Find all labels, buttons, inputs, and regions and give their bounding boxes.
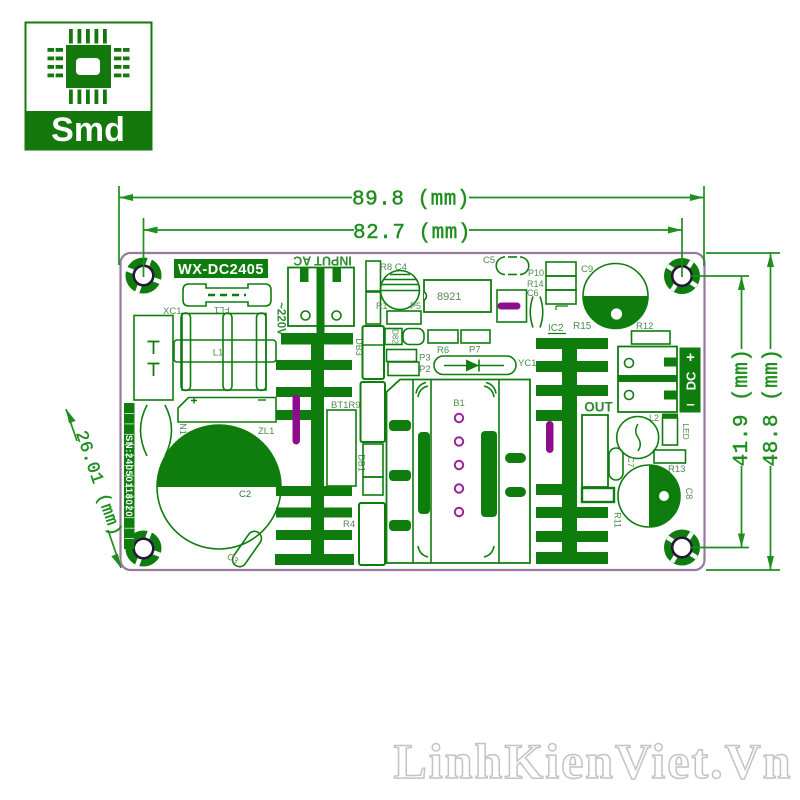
svg-text:R6: R6 (437, 345, 449, 356)
svg-text:~220V: ~220V (275, 302, 287, 336)
svg-text:C5: C5 (483, 255, 495, 266)
svg-text:OUT: OUT (584, 400, 613, 415)
svg-text:DB1: DB1 (357, 454, 367, 472)
svg-text:IC2: IC2 (548, 323, 564, 334)
svg-text:48.8 (mm): 48.8 (mm) (761, 349, 784, 467)
svg-text:C2: C2 (239, 489, 251, 500)
svg-text:R1: R1 (376, 301, 388, 311)
svg-text:LinhKienViet.Vn: LinhKienViet.Vn (393, 733, 792, 789)
svg-text:LED: LED (681, 423, 691, 440)
svg-text:R11: R11 (613, 512, 623, 528)
svg-text:N1: N1 (178, 423, 188, 435)
svg-text:WX-DC2405: WX-DC2405 (178, 262, 264, 278)
svg-text:DC: DC (684, 371, 699, 390)
svg-text:ZL1: ZL1 (258, 426, 274, 437)
svg-text:Smd: Smd (51, 111, 125, 149)
svg-text:8921: 8921 (437, 291, 461, 303)
svg-text:R4: R4 (343, 519, 355, 530)
svg-text:C7: C7 (626, 457, 636, 468)
svg-text:P3: P3 (419, 353, 431, 364)
svg-text:D82: D82 (391, 329, 400, 344)
svg-text:B1: B1 (453, 398, 465, 409)
svg-text:P2: P2 (419, 364, 431, 375)
svg-text:SN:24050118020: SN:24050118020 (123, 435, 134, 517)
svg-text:BT1R9: BT1R9 (331, 400, 361, 411)
svg-text:82.7 (mm): 82.7 (mm) (353, 222, 471, 245)
svg-text:P10: P10 (528, 268, 544, 278)
svg-text:R15: R15 (573, 321, 592, 332)
svg-text:C8: C8 (684, 488, 694, 500)
svg-text:L1: L1 (213, 348, 224, 359)
svg-text:P5: P5 (410, 301, 421, 311)
svg-text:YC1: YC1 (518, 358, 536, 369)
svg-text:P7: P7 (469, 345, 481, 356)
svg-text:+: + (686, 349, 695, 366)
svg-text:41.9 (mm): 41.9 (mm) (731, 349, 754, 467)
svg-text:INPUT AC: INPUT AC (293, 254, 352, 268)
svg-text:–: – (686, 396, 694, 413)
svg-text:89.8 (mm): 89.8 (mm) (352, 189, 470, 212)
